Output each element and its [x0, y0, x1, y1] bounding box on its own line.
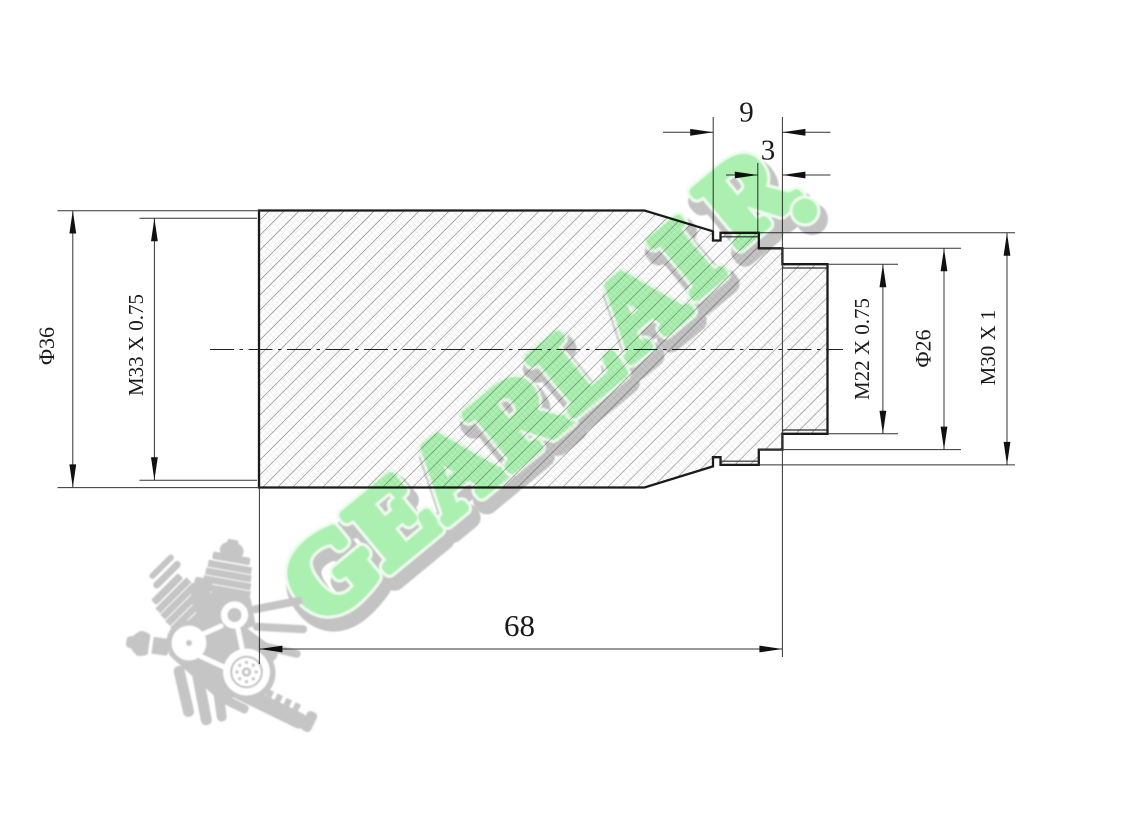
svg-text:M33 X 0.75: M33 X 0.75 [124, 294, 148, 396]
svg-text:9: 9 [739, 97, 754, 129]
svg-text:Φ26: Φ26 [911, 329, 936, 367]
svg-text:68: 68 [504, 608, 535, 643]
svg-text:Φ36: Φ36 [34, 327, 59, 365]
svg-text:M30 X 1: M30 X 1 [976, 310, 1000, 386]
svg-text:M22 X 0.75: M22 X 0.75 [850, 298, 874, 400]
